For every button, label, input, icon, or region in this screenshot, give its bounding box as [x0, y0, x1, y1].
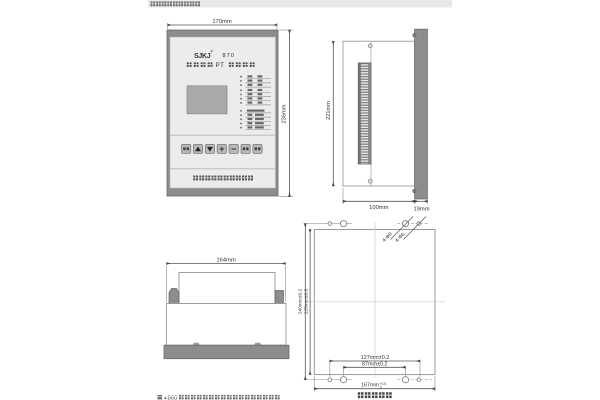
- svg-text:19mm: 19mm: [413, 207, 429, 213]
- svg-text:127mm±0.2: 127mm±0.2: [361, 355, 389, 361]
- svg-text:87mm±0.2: 87mm±0.2: [362, 361, 387, 367]
- svg-text:SJKJ: SJKJ: [194, 53, 211, 60]
- svg-text:100mm: 100mm: [369, 205, 389, 211]
- svg-text:PT: PT: [216, 62, 225, 69]
- svg-text:236mm: 236mm: [281, 104, 287, 123]
- svg-text:164mm: 164mm: [216, 257, 236, 263]
- svg-text:167mm: 167mm: [361, 382, 379, 388]
- svg-text:240mm±0.2: 240mm±0.2: [297, 289, 303, 315]
- svg-text:221mm: 221mm: [326, 101, 332, 120]
- svg-text:860: 860: [168, 395, 178, 400]
- svg-text:870: 870: [223, 53, 236, 59]
- svg-text:225mm±0.5: 225mm±0.5: [304, 289, 310, 315]
- svg-text:170mm: 170mm: [212, 19, 232, 25]
- svg-text:0: 0: [380, 385, 382, 389]
